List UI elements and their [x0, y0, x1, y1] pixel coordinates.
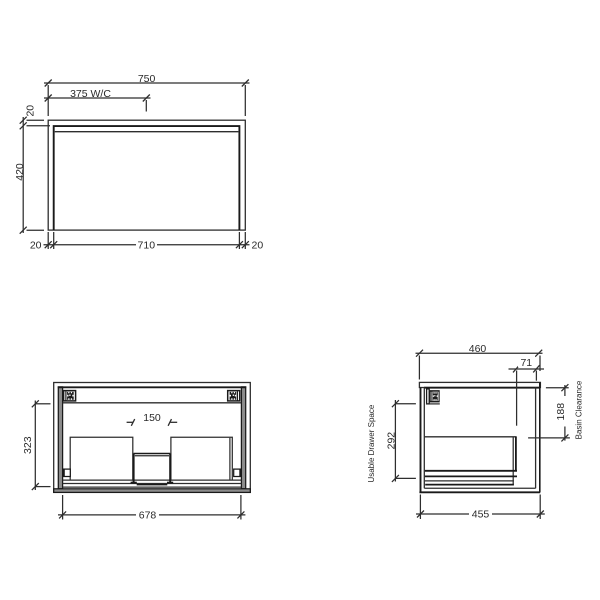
svg-text:323: 323 [22, 436, 34, 454]
svg-text:678: 678 [139, 510, 157, 522]
svg-text:20: 20 [24, 105, 36, 117]
svg-text:150: 150 [143, 412, 161, 424]
svg-text:710: 710 [138, 239, 156, 251]
svg-text:Basin Clearance: Basin Clearance [575, 380, 584, 439]
svg-text:460: 460 [469, 343, 487, 355]
svg-text:20: 20 [252, 239, 264, 251]
svg-text:188: 188 [555, 403, 567, 421]
svg-text:292: 292 [385, 432, 397, 450]
svg-text:Usable Drawer Space: Usable Drawer Space [367, 404, 376, 482]
svg-text:420: 420 [14, 163, 26, 181]
svg-text:750: 750 [138, 73, 156, 85]
svg-text:375 W/C: 375 W/C [70, 88, 111, 100]
svg-text:20: 20 [30, 239, 42, 251]
svg-text:71: 71 [520, 357, 532, 369]
svg-text:455: 455 [472, 509, 490, 521]
